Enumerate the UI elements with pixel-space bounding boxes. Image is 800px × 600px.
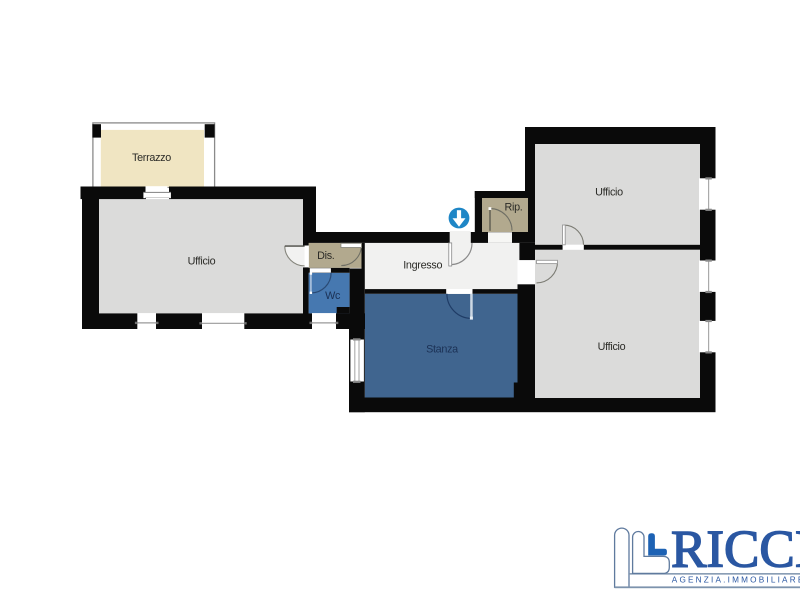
- svg-text:Ufficio: Ufficio: [598, 341, 626, 353]
- svg-text:Dis.: Dis.: [317, 250, 335, 262]
- svg-text:Wc: Wc: [325, 290, 341, 302]
- svg-text:AGENZIA.IMMOBILIARE: AGENZIA.IMMOBILIARE: [672, 576, 800, 585]
- svg-text:Ufficio: Ufficio: [188, 255, 216, 267]
- svg-text:Rip.: Rip.: [504, 201, 522, 213]
- svg-text:Stanza: Stanza: [426, 344, 458, 356]
- svg-text:Ingresso: Ingresso: [403, 260, 442, 272]
- svg-text:Ufficio: Ufficio: [595, 186, 623, 198]
- svg-text:Terrazzo: Terrazzo: [132, 152, 171, 164]
- svg-text:RICCI: RICCI: [671, 521, 800, 579]
